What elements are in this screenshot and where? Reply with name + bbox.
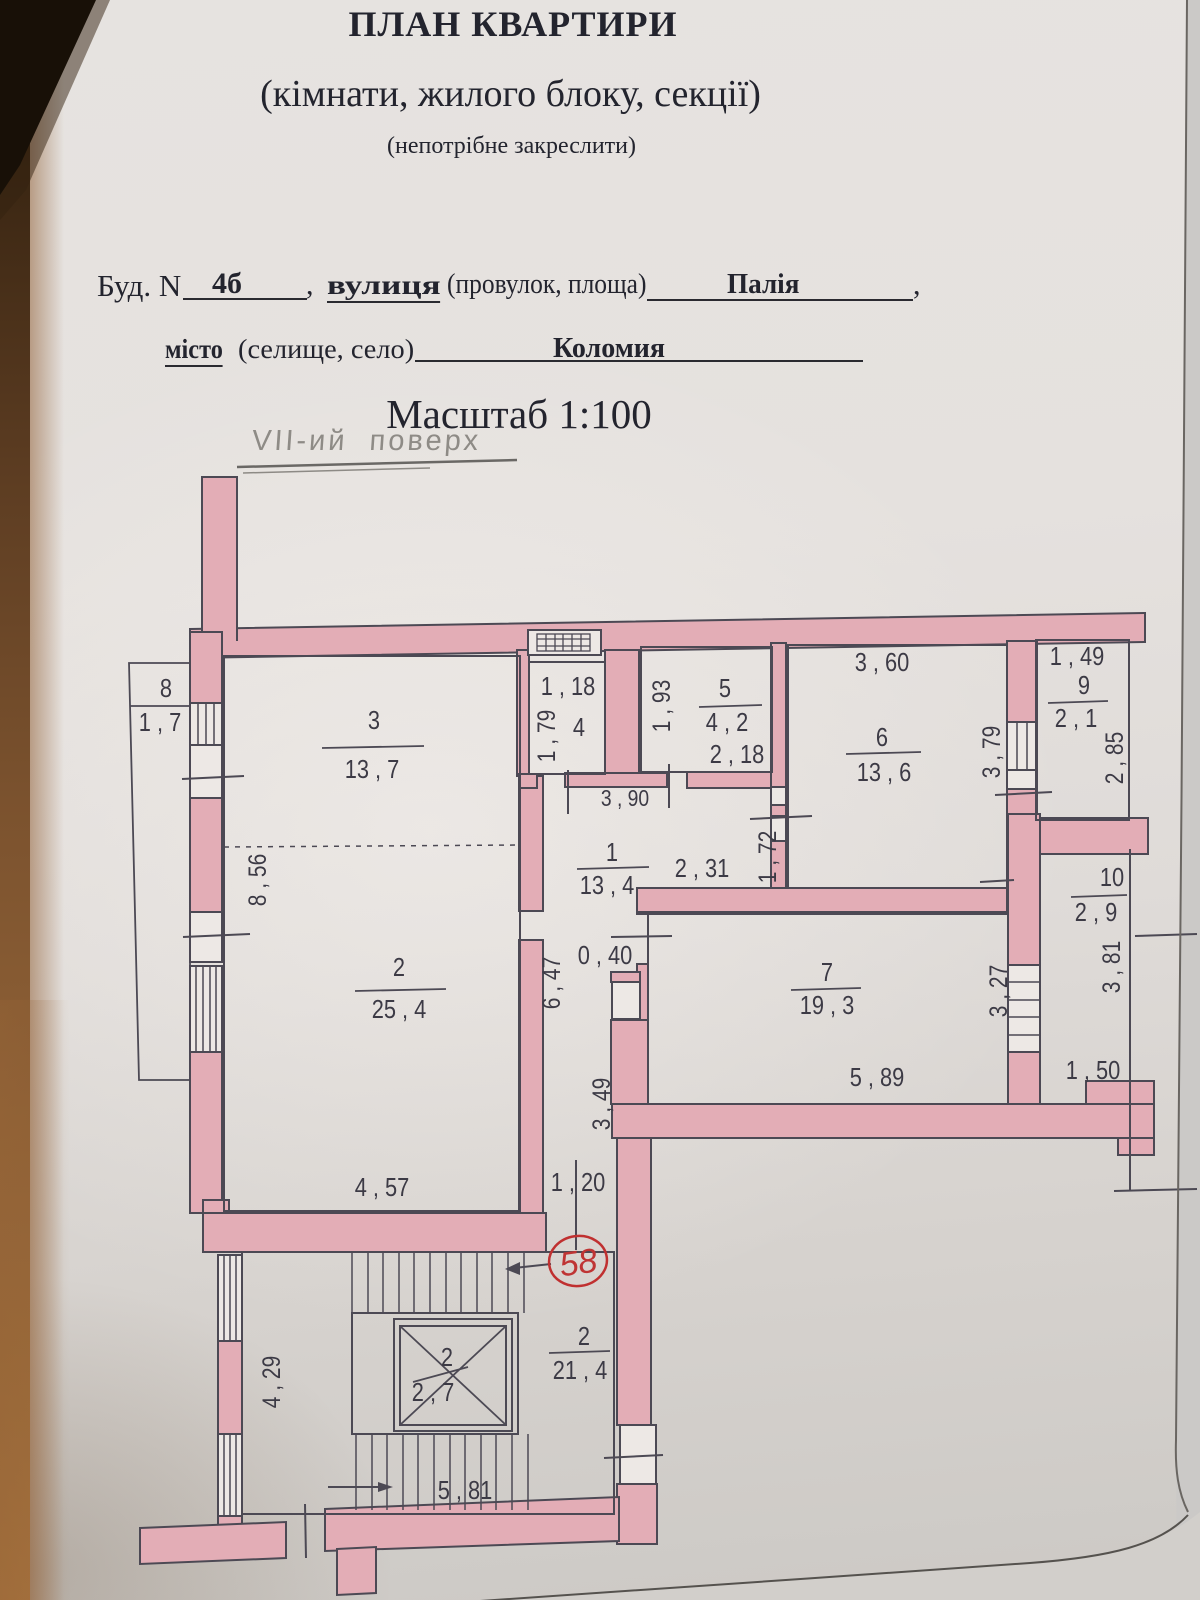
svg-text:13 , 6: 13 , 6 — [857, 758, 912, 787]
svg-text:3 , 27: 3 , 27 — [984, 965, 1012, 1018]
svg-text:1 , 72: 1 , 72 — [753, 831, 781, 884]
svg-text:4 , 2: 4 , 2 — [706, 708, 748, 737]
svg-text:2: 2 — [393, 953, 405, 982]
svg-text:2 , 1: 2 , 1 — [1055, 704, 1097, 733]
svg-text:3 , 60: 3 , 60 — [855, 648, 910, 677]
svg-text:5 , 89: 5 , 89 — [850, 1063, 905, 1092]
svg-text:1: 1 — [606, 838, 618, 867]
svg-text:0 , 40: 0 , 40 — [578, 941, 633, 970]
svg-text:8 , 56: 8 , 56 — [243, 854, 271, 907]
svg-text:3 , 81: 3 , 81 — [1097, 941, 1125, 994]
svg-text:8: 8 — [160, 674, 172, 703]
svg-text:1 , 18: 1 , 18 — [541, 672, 596, 701]
svg-text:1 , 20: 1 , 20 — [551, 1168, 606, 1197]
svg-text:9: 9 — [1078, 671, 1090, 700]
svg-text:3 , 79: 3 , 79 — [977, 726, 1005, 779]
svg-text:2 , 9: 2 , 9 — [1075, 898, 1117, 927]
svg-text:2 , 85: 2 , 85 — [1100, 732, 1128, 785]
svg-text:6 , 47: 6 , 47 — [537, 957, 565, 1010]
svg-text:4 , 29: 4 , 29 — [257, 1356, 285, 1409]
svg-text:6: 6 — [876, 723, 888, 752]
svg-text:1 , 79: 1 , 79 — [532, 710, 560, 763]
svg-text:2: 2 — [578, 1322, 590, 1351]
svg-text:3 , 90: 3 , 90 — [601, 787, 649, 812]
svg-text:2: 2 — [441, 1343, 453, 1372]
svg-text:21 , 4: 21 , 4 — [553, 1356, 608, 1385]
svg-text:3: 3 — [368, 706, 380, 735]
svg-text:7: 7 — [821, 958, 833, 987]
svg-text:1 , 7: 1 , 7 — [139, 708, 181, 737]
svg-text:4 , 57: 4 , 57 — [355, 1173, 410, 1202]
svg-text:4: 4 — [573, 713, 585, 742]
svg-text:1 , 93: 1 , 93 — [647, 680, 675, 733]
svg-text:10: 10 — [1100, 863, 1124, 892]
svg-text:13 , 4: 13 , 4 — [580, 871, 635, 900]
svg-text:1 , 49: 1 , 49 — [1050, 642, 1105, 671]
svg-text:5 , 81: 5 , 81 — [438, 1476, 493, 1505]
svg-text:5: 5 — [719, 674, 731, 703]
svg-text:19 , 3: 19 , 3 — [800, 991, 855, 1020]
svg-text:2 , 31: 2 , 31 — [675, 854, 730, 883]
svg-text:1 , 50: 1 , 50 — [1066, 1056, 1121, 1085]
svg-text:2 , 7: 2 , 7 — [412, 1378, 454, 1407]
svg-text:13 , 7: 13 , 7 — [345, 755, 400, 784]
svg-text:25 , 4: 25 , 4 — [372, 995, 427, 1024]
svg-text:2 , 18: 2 , 18 — [710, 740, 765, 769]
svg-text:58: 58 — [557, 1242, 600, 1285]
svg-text:3 , 49: 3 , 49 — [587, 1078, 615, 1131]
